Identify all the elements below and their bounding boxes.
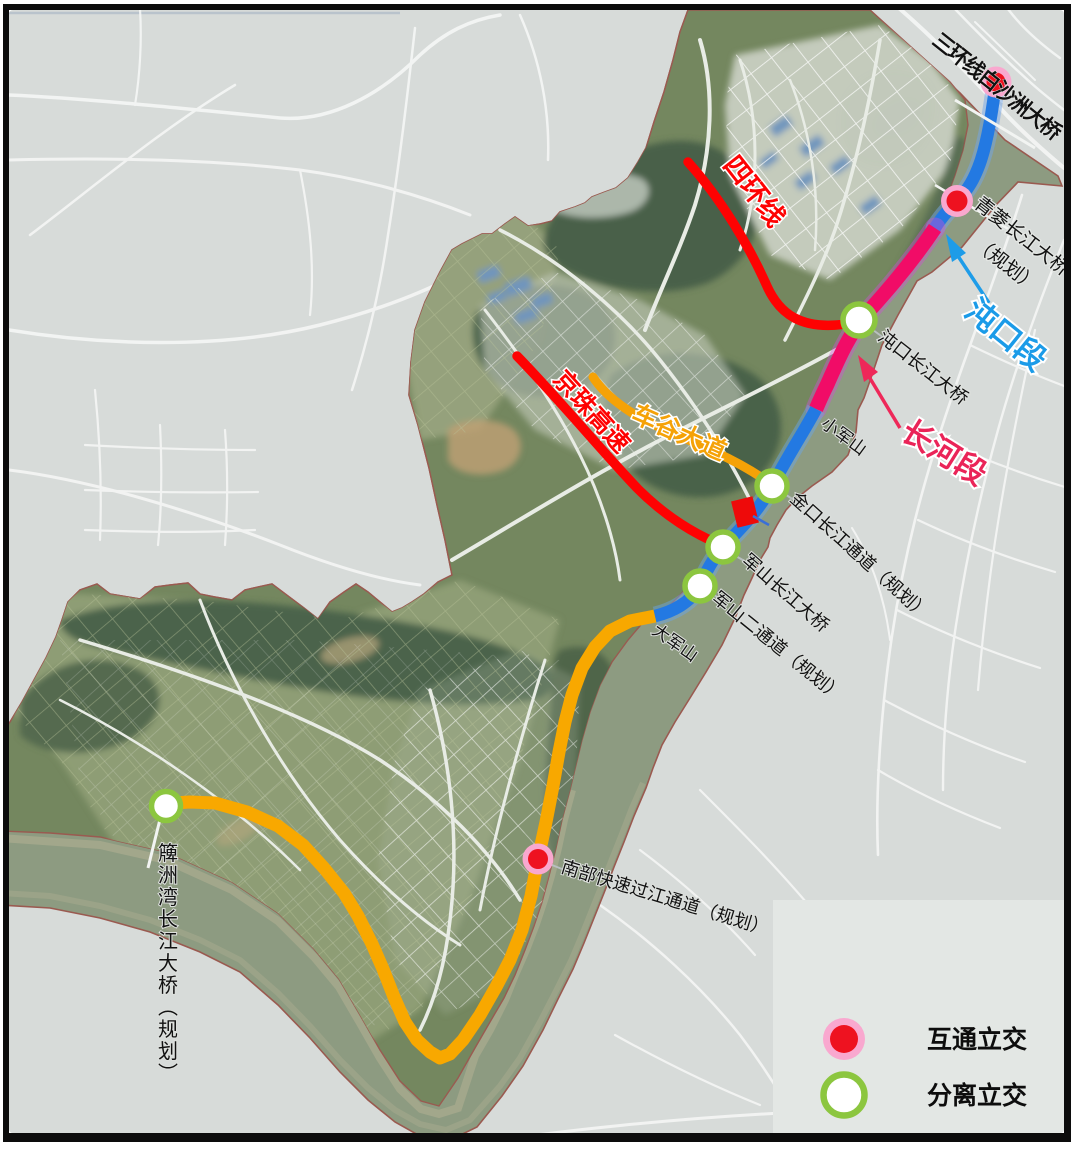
- svg-text:簰: 簰: [158, 842, 178, 865]
- svg-text:江: 江: [158, 930, 178, 953]
- svg-text:划: 划: [158, 1040, 178, 1063]
- svg-text:规: 规: [158, 1018, 178, 1041]
- svg-text:︶: ︶: [158, 1062, 178, 1085]
- svg-text:︵: ︵: [158, 997, 178, 1019]
- svg-text:互通立交: 互通立交: [927, 1025, 1027, 1054]
- svg-text:大: 大: [158, 952, 178, 975]
- svg-text:桥: 桥: [158, 974, 178, 997]
- svg-text:分离立交: 分离立交: [927, 1081, 1027, 1110]
- svg-text:湾: 湾: [158, 886, 178, 909]
- svg-text:洲: 洲: [158, 865, 178, 887]
- svg-text:长: 长: [158, 908, 178, 931]
